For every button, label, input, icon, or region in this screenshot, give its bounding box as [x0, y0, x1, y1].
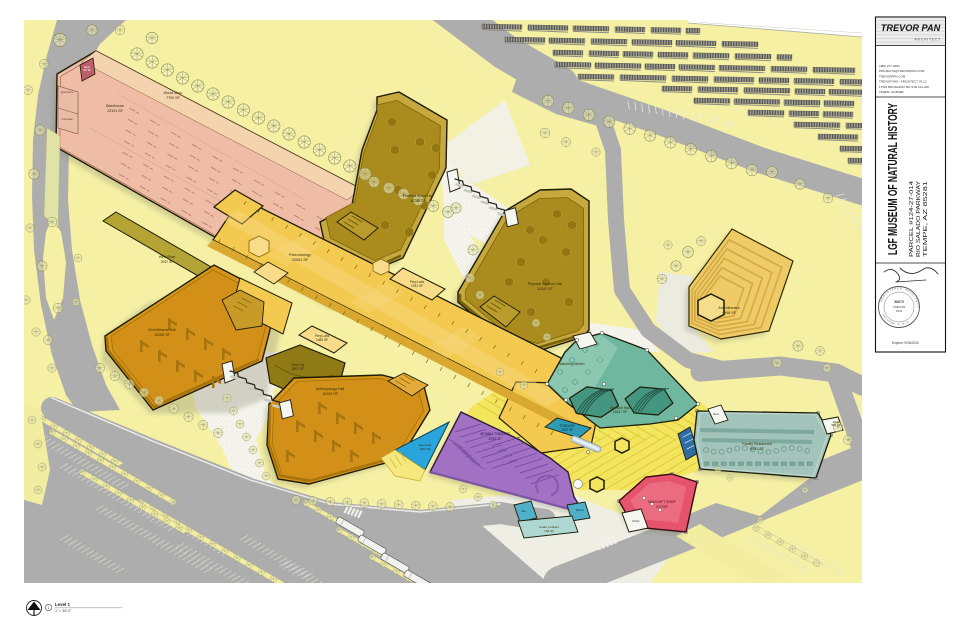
svg-text:Paleontology: Paleontology — [289, 253, 311, 257]
svg-text:Wood Shop: Wood Shop — [164, 91, 183, 95]
svg-text:Family Restaurant: Family Restaurant — [742, 442, 771, 446]
svg-text:7700 SF: 7700 SF — [166, 96, 180, 100]
svg-text:8951 SF: 8951 SF — [750, 447, 764, 451]
svg-text:(480) 277-3459: (480) 277-3459 — [879, 64, 900, 68]
svg-text:2472SF: 2472SF — [656, 505, 668, 509]
svg-text:16786 SF: 16786 SF — [410, 199, 426, 203]
svg-text:20961 SF: 20961 SF — [292, 258, 309, 262]
svg-text:2037 SF: 2037 SF — [161, 260, 174, 264]
svg-text:TEMPE, AZ 85282: TEMPE, AZ 85282 — [879, 90, 904, 94]
svg-text:6792 SF: 6792 SF — [489, 437, 502, 441]
svg-text:1: 1 — [48, 606, 50, 610]
svg-text:Quarantine: Quarantine — [61, 90, 74, 94]
svg-text:580 SF: 580 SF — [831, 423, 840, 427]
svg-text:TREVOR PAN: TREVOR PAN — [881, 23, 941, 33]
svg-text:Corporate: Corporate — [61, 117, 73, 121]
svg-text:PAN: PAN — [896, 309, 902, 313]
svg-text:16163 SF: 16163 SF — [322, 392, 338, 396]
svg-text:MAIN GIFT SHOP: MAIN GIFT SHOP — [648, 500, 676, 504]
svg-text:TREVORPAN.COM: TREVORPAN.COM — [879, 74, 906, 78]
svg-text:3402 SF: 3402 SF — [292, 367, 304, 371]
svg-text:PARCEL #124-27-014: PARCEL #124-27-014 — [909, 180, 915, 257]
svg-text:56675: 56675 — [894, 300, 904, 304]
svg-text:9498 SF: 9498 SF — [722, 311, 736, 315]
svg-text:1920 SF: 1920 SF — [561, 428, 573, 432]
svg-text:Weld Shop: Weld Shop — [159, 255, 176, 259]
svg-text:Stroller: Stroller — [632, 520, 640, 523]
svg-text:1902 SF: 1902 SF — [419, 447, 431, 451]
svg-text:Level 1: Level 1 — [55, 602, 70, 607]
svg-text:PROJECTS@TREVORPAN.COM: PROJECTS@TREVORPAN.COM — [879, 69, 925, 73]
svg-text:TREVOR PAN - ARCHITECT, PLLC: TREVOR PAN - ARCHITECT, PLLC — [879, 80, 928, 84]
svg-text:Mech: Mech — [84, 66, 91, 69]
svg-text:Expires: 9/30/2026: Expires: 9/30/2026 — [892, 341, 919, 345]
svg-text:Amphitheatre: Amphitheatre — [718, 306, 739, 310]
svg-text:Anthropology Hall: Anthropology Hall — [316, 387, 345, 391]
svg-text:ARCHITECT: ARCHITECT — [914, 38, 941, 42]
svg-text:Petrified Wood Hall: Petrified Wood Hall — [403, 194, 434, 198]
svg-text:11922 SF: 11922 SF — [537, 287, 553, 291]
svg-text:TEMPE, AZ 85281: TEMPE, AZ 85281 — [923, 181, 929, 257]
svg-text:22101 SF: 22101 SF — [107, 109, 123, 113]
svg-text:347 SF: 347 SF — [83, 70, 91, 72]
svg-text:1469 SF: 1469 SF — [316, 338, 328, 342]
svg-text:Warming Kitchen: Warming Kitchen — [560, 362, 585, 366]
svg-text:LGF MUSEUM OF NATURAL HISTORY: LGF MUSEUM OF NATURAL HISTORY — [885, 103, 900, 255]
svg-text:RIO SALADO PARKWAY: RIO SALADO PARKWAY — [916, 181, 922, 257]
svg-text:1" = 30'-0": 1" = 30'-0" — [55, 609, 72, 613]
svg-text:792 SF: 792 SF — [544, 529, 554, 533]
svg-text:Mens: Mens — [713, 413, 720, 416]
svg-text:16165 SF: 16165 SF — [154, 333, 170, 337]
svg-text:Women: Women — [576, 509, 585, 512]
svg-text:17522 BROADWAY RD STE 101-200: 17522 BROADWAY RD STE 101-200 — [879, 85, 929, 89]
svg-text:Warehouse: Warehouse — [106, 104, 124, 108]
svg-text:12647 SF: 12647 SF — [613, 410, 628, 414]
svg-text:Physical Science Hall: Physical Science Hall — [528, 282, 563, 286]
svg-text:1931 SF: 1931 SF — [411, 284, 423, 288]
svg-text:4D IMAX THEATER: 4D IMAX THEATER — [480, 432, 511, 436]
svg-text:Men: Men — [522, 510, 527, 513]
svg-text:Gem/Mineral Hall: Gem/Mineral Hall — [148, 328, 176, 332]
